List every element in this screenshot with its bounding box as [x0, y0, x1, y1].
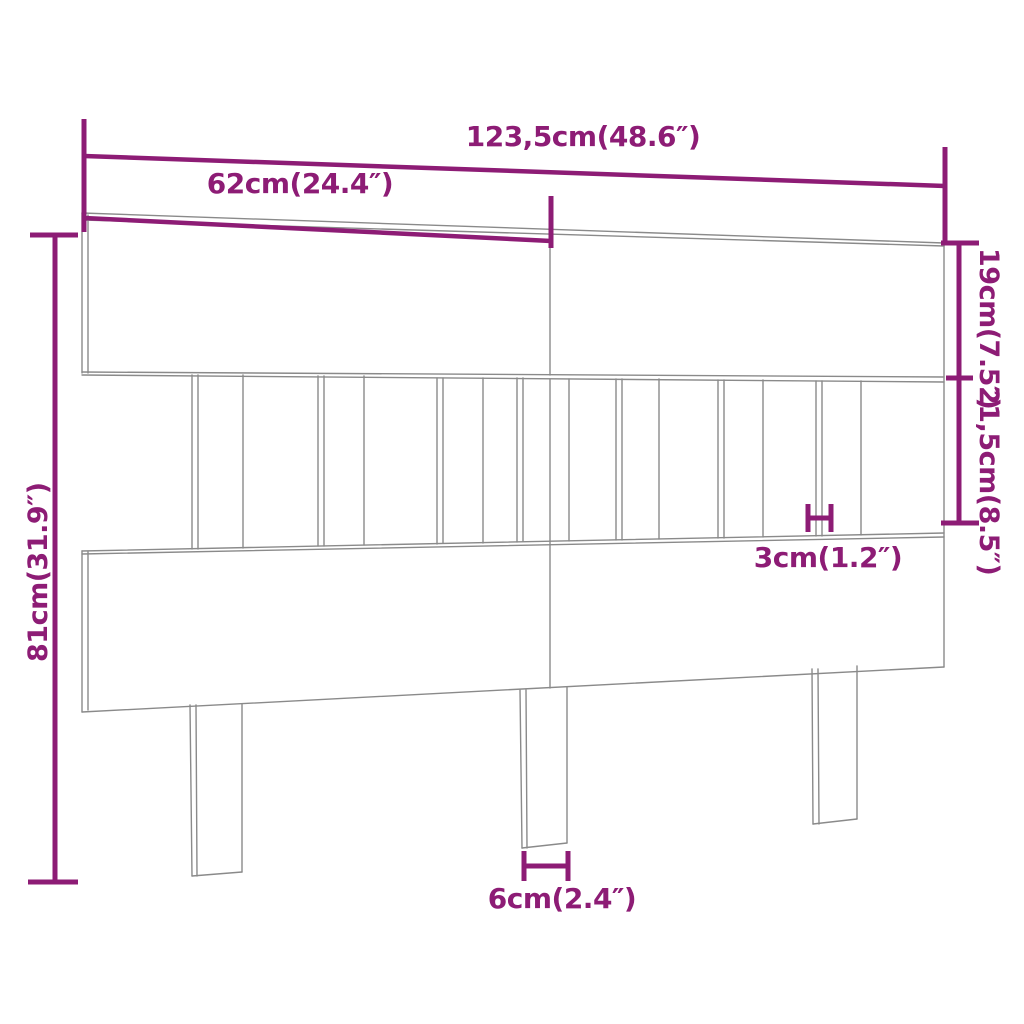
dim-slat-thickness	[808, 504, 831, 532]
slat-band	[192, 375, 861, 549]
half-width-label: 62cm(24.4″)	[207, 167, 393, 200]
total-height-label: 81cm(31.9″)	[23, 482, 54, 662]
slat	[318, 376, 364, 546]
headboard-dimension-drawing: 123,5cm(48.6″) 62cm(24.4″) 19cm(7.5″) 21…	[0, 0, 1024, 1024]
leg-width-label: 6cm(2.4″)	[488, 882, 636, 915]
slat-thickness-label: 3cm(1.2″)	[754, 541, 902, 574]
leg-left	[190, 704, 242, 876]
slat	[718, 380, 763, 538]
slat	[616, 379, 659, 540]
slat	[816, 381, 861, 536]
dimension-lines	[28, 119, 979, 882]
slat	[192, 375, 243, 549]
diagram-canvas: 123,5cm(48.6″) 62cm(24.4″) 19cm(7.5″) 21…	[0, 0, 1024, 1024]
total-width-label: 123,5cm(48.6″)	[466, 120, 701, 153]
slat	[437, 378, 483, 544]
leg-right	[812, 666, 857, 824]
slat-section-height-label: 21,5cm(8.5″)	[973, 386, 1004, 575]
leg-middle	[520, 687, 567, 848]
dim-leg-width	[524, 851, 568, 881]
slat	[517, 378, 569, 542]
dim-half-width	[84, 196, 551, 248]
